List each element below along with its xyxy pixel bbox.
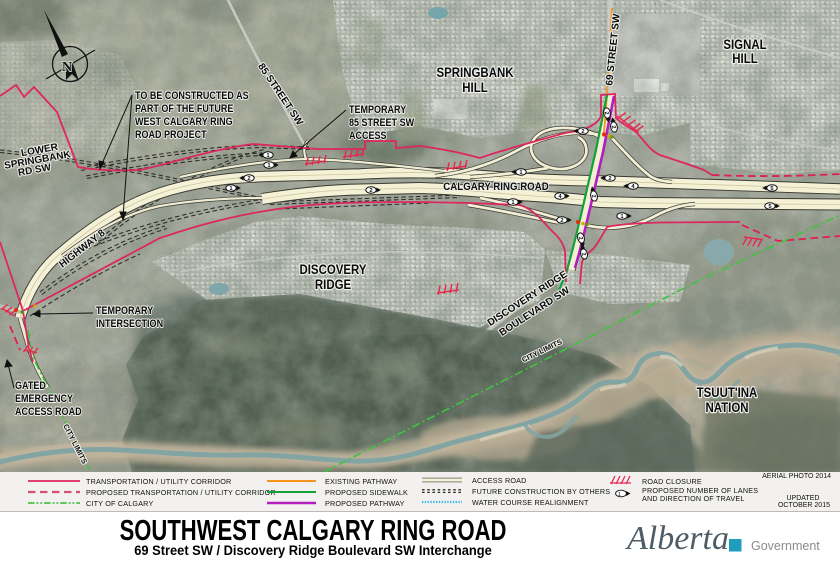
svg-text:ROAD PROJECT: ROAD PROJECT	[135, 129, 207, 141]
svg-text:TRANSPORTATION / UTILITY CORRI: TRANSPORTATION / UTILITY CORRIDOR	[86, 477, 231, 486]
svg-text:2: 2	[369, 188, 372, 194]
svg-text:85 STREET SW: 85 STREET SW	[349, 117, 415, 129]
svg-text:EXISTING PATHWAY: EXISTING PATHWAY	[325, 477, 397, 486]
svg-text:WATER COURSE REALIGNMENT: WATER COURSE REALIGNMENT	[472, 498, 589, 507]
svg-text:SIGNAL: SIGNAL	[723, 37, 767, 52]
svg-text:N: N	[62, 60, 72, 75]
svg-text:69 Street SW / Discovery Ridge: 69 Street SW / Discovery Ridge Boulevard…	[134, 543, 492, 559]
svg-text:UPDATED: UPDATED	[787, 495, 820, 502]
svg-text:2: 2	[581, 129, 584, 135]
svg-text:2: 2	[560, 218, 563, 224]
svg-text:TSUUT'INA: TSUUT'INA	[697, 385, 758, 400]
svg-text:GATED: GATED	[15, 380, 46, 392]
svg-text:ACCESS ROAD: ACCESS ROAD	[15, 406, 82, 418]
svg-text:FUTURE CONSTRUCTION BY OTHERS: FUTURE CONSTRUCTION BY OTHERS	[472, 487, 610, 496]
svg-text:EMERGENCY: EMERGENCY	[15, 393, 73, 405]
svg-text:2: 2	[247, 176, 250, 182]
svg-text:ACCESS ROAD: ACCESS ROAD	[472, 476, 527, 485]
svg-text:ACCESS: ACCESS	[349, 130, 387, 142]
svg-text:CALGARY RING ROAD: CALGARY RING ROAD	[443, 182, 549, 194]
svg-text:HILL: HILL	[462, 80, 488, 95]
svg-text:TEMPORARY: TEMPORARY	[96, 305, 153, 317]
svg-text:CITY OF CALGARY: CITY OF CALGARY	[86, 499, 153, 508]
svg-text:SPRINGBANK: SPRINGBANK	[436, 65, 513, 80]
svg-text:PROPOSED SIDEWALK: PROPOSED SIDEWALK	[325, 488, 408, 497]
svg-text:RIDGE: RIDGE	[315, 277, 351, 292]
svg-text:DISCOVERY: DISCOVERY	[299, 262, 367, 277]
svg-text:Government: Government	[751, 539, 820, 553]
svg-text:AND DIRECTION OF TRAVEL: AND DIRECTION OF TRAVEL	[642, 494, 745, 503]
svg-text:AERIAL PHOTO 2014: AERIAL PHOTO 2014	[762, 473, 831, 480]
svg-text:WEST CALGARY RING: WEST CALGARY RING	[135, 116, 233, 128]
svg-text:TO BE CONSTRUCTED AS: TO BE CONSTRUCTED AS	[135, 90, 249, 102]
svg-text:Alberta: Alberta	[625, 520, 729, 557]
svg-text:PROPOSED PATHWAY: PROPOSED PATHWAY	[325, 499, 405, 508]
svg-text:ROAD CLOSURE: ROAD CLOSURE	[642, 477, 702, 486]
svg-text:OCTOBER 2015: OCTOBER 2015	[778, 502, 830, 509]
svg-text:TEMPORARY: TEMPORARY	[349, 104, 406, 116]
svg-text:INTERSECTION: INTERSECTION	[96, 318, 163, 330]
svg-text:2: 2	[608, 176, 611, 182]
svg-text:PART OF THE FUTURE: PART OF THE FUTURE	[135, 103, 234, 115]
svg-text:PROPOSED TRANSPORTATION / UTIL: PROPOSED TRANSPORTATION / UTILITY CORRID…	[86, 488, 276, 497]
svg-text:NATION: NATION	[705, 400, 748, 415]
svg-text:1: 1	[618, 492, 621, 498]
svg-text:HILL: HILL	[732, 51, 758, 66]
